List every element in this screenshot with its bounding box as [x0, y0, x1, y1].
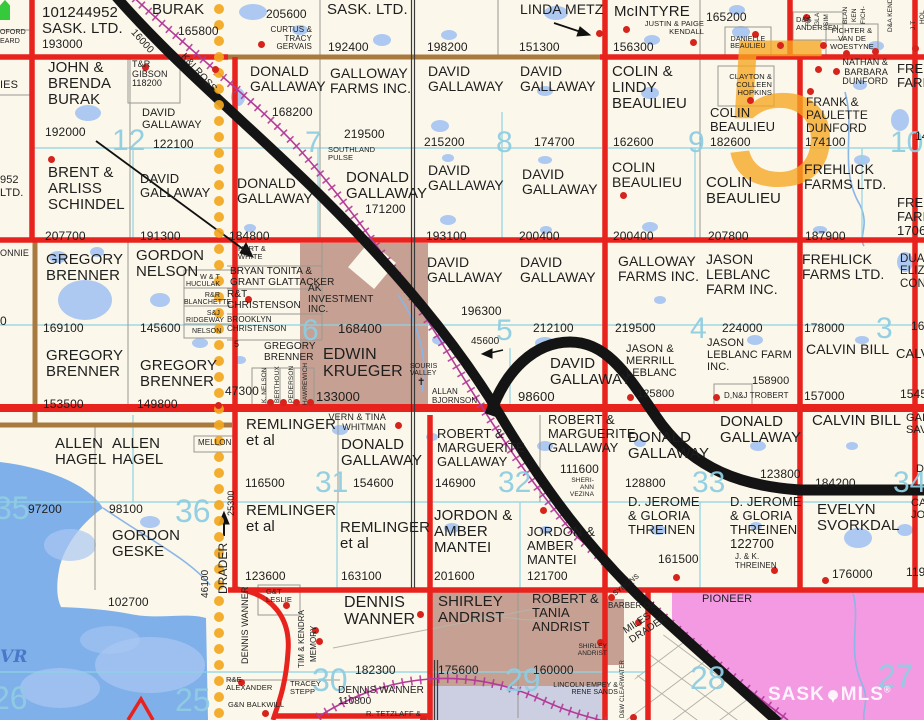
parcel-owner-label: DONALD GALLAWAY: [628, 430, 709, 462]
parcel-owner-label: LINCOLN EMPEY & RENE SANDS: [548, 682, 618, 697]
assessment-value: 201600: [434, 570, 475, 583]
parcel-owner-label: DONALD GALLAWAY: [250, 64, 326, 94]
parcel-owner-label: FICHTER & VAN DE WOESTYNE: [830, 27, 874, 51]
grid-road-dot: [214, 628, 224, 638]
parcel-owner-label: IES: [0, 80, 18, 92]
farm-site-dot: [815, 66, 822, 73]
farm-site-dot: [540, 507, 547, 514]
farm-site-dot: [212, 66, 219, 73]
parcel-owner-label: COLIN BEAULIEU: [710, 106, 775, 134]
assessment-value: 192400: [328, 41, 369, 54]
parcel-owner-label: ALLAN BJORNSON: [432, 388, 477, 405]
grid-road-dot: [214, 484, 224, 494]
parcel-owner-label: W & T HUCULAK: [186, 274, 220, 289]
parcel-owner-label: DAVID GALLAWAY: [140, 172, 210, 200]
parcel-owner-label: BRENT & ARLISS SCHINDEL: [48, 165, 125, 213]
parcel-owner-label: HART & WHITE: [238, 245, 266, 261]
parcel-owner-label: FREHLICK FARMS: [897, 62, 924, 90]
grid-road-dot: [214, 212, 224, 222]
assessment-value: 25300: [227, 490, 237, 516]
parcel-owner-label: GALLOWAY FARMS INC.: [330, 66, 411, 96]
section-number: 12: [112, 126, 145, 156]
farm-site-dot: [822, 577, 829, 584]
parcel-owner-label: D: [916, 464, 924, 476]
grid-road-dot: [214, 708, 224, 718]
assessment-value: 121700: [527, 570, 568, 583]
assessment-value: 182600: [710, 136, 751, 149]
parcel-owner-label: COLIN BEAULIEU: [612, 160, 682, 190]
assessment-value: 160000: [533, 664, 574, 677]
parcel-owner-label: NATHAN & BARBARA DUNFORD: [836, 58, 888, 87]
section-number: 8: [496, 128, 513, 158]
farm-site-dot: [777, 42, 784, 49]
grid-road-dot: [214, 452, 224, 462]
grid-road-dot: [214, 660, 224, 670]
assessment-value: 169100: [43, 322, 84, 335]
parcel-owner-label: SHIRLEY ANDRIST: [575, 644, 607, 658]
sask-mls-watermark: SASKMLS®: [768, 684, 892, 706]
farm-site-dot: [673, 574, 680, 581]
assessment-value: 161500: [658, 553, 699, 566]
road-name-label: DRADER: [217, 543, 230, 594]
watermark-text-left: SASK: [768, 684, 825, 705]
lake-name-fragment: VR: [0, 648, 28, 666]
grid-road-dot: [214, 116, 224, 126]
parcel-owner-label: R&T CHRISTENSON: [227, 290, 301, 311]
parcel-owner-label: ONNIE: [0, 249, 29, 259]
parcel-owner-label: DENNIS WANNER: [241, 587, 251, 664]
parcel-owner-label: JASON LEBLANC FARM INC.: [706, 252, 778, 297]
assessment-value: 45600: [471, 337, 499, 348]
parcel-owner-label: DAVID GALLAWAY: [520, 64, 596, 94]
assessment-value: 154600: [353, 477, 394, 490]
grid-road-dot: [214, 644, 224, 654]
assessment-value: 200400: [519, 230, 560, 243]
assessment-value: 101244952 SASK. LTD.: [42, 5, 123, 37]
assessment-value: 184200: [815, 477, 856, 490]
grid-road-dot: [214, 52, 224, 62]
farm-site-dot: [215, 402, 222, 409]
farm-site-dot: [820, 42, 827, 49]
assessment-value: 0: [0, 315, 7, 328]
farm-site-dot: [713, 394, 720, 401]
grid-road-dot: [214, 180, 224, 190]
assessment-value: 156300: [613, 41, 654, 54]
farm-site-dot: [747, 97, 754, 104]
parcel-owner-label: HAWREWICH: [303, 363, 310, 405]
section-number: 3: [876, 314, 893, 344]
parcel-owner-label: DONALD GALLAWAY: [346, 170, 427, 202]
parcel-owner-label: D&A KEND: [888, 0, 895, 32]
assessment-value: 151300: [519, 41, 560, 54]
assessment-value: 123800: [760, 468, 801, 481]
parcel-owner-label: COLIN & LINDY BEAULIEU: [612, 64, 687, 112]
parcel-owner-label: EARD: [0, 38, 20, 45]
parcel-owner-label: DAVID GALLAWAY: [520, 255, 596, 285]
assessment-value: 158900: [752, 376, 789, 388]
section-number: 36: [175, 495, 211, 527]
elevator-label: PIONEER: [702, 594, 752, 606]
assessment-value: 184800: [229, 230, 270, 243]
parcel-owner-label: CALVIN BILL: [806, 342, 889, 357]
farm-site-dot: [395, 422, 402, 429]
assessment-value: 133000: [316, 390, 360, 404]
parcel-owner-label: DENNIS WANNER: [344, 594, 415, 628]
assessment-value: 153500: [43, 398, 84, 411]
parcel-owner-label: VERN & TINA WHITMAN: [322, 413, 386, 432]
grid-road-dot: [214, 196, 224, 206]
parcel-owner-label: BLAN: [843, 7, 850, 24]
assessment-value: 175600: [438, 664, 479, 677]
farm-site-dot: [596, 30, 603, 37]
parcel-owner-label: DONALD GALLAWAY: [720, 414, 801, 446]
assessment-value: 149800: [137, 398, 178, 411]
parcel-owner-label: GREGORY BRENNER: [46, 252, 123, 284]
assessment-value: 171200: [365, 203, 406, 216]
parcel-owner-label: DENNIS WANNER 110800: [338, 686, 424, 707]
farm-site-dot: [807, 88, 814, 95]
assessment-value: 182300: [355, 664, 396, 677]
parcel-owner-label: GALLOWAY FARMS INC.: [618, 254, 699, 284]
section-number: 32: [498, 468, 531, 498]
grid-road-dot: [214, 676, 224, 686]
parcel-owner-label: D,N&J TROBERT: [724, 392, 789, 401]
parcel-owner-label: JORDON & AMBER MANTEI: [434, 508, 512, 556]
section-number: 28: [690, 662, 726, 694]
parcel-owner-label: REMLINGER et al: [340, 520, 430, 552]
grid-road-dot: [214, 532, 224, 542]
grid-road-dot: [214, 164, 224, 174]
section-number: 9: [688, 128, 705, 158]
parcel-owner-label: BURAK: [152, 2, 204, 18]
assessment-value: 154500: [900, 388, 924, 401]
parcel-owner-label: LINDA METZ: [520, 2, 603, 17]
parcel-owner-label: SIM: [824, 14, 831, 26]
grid-road-dot: [214, 516, 224, 526]
parcel-owner-label: HOL: [920, 10, 924, 24]
parcel-owner-label: G&T LESLIE: [266, 588, 292, 604]
parcel-owner-label: NELSON: [192, 328, 221, 335]
assessment-value: 207700: [45, 230, 86, 243]
parcel-owner-label: McINTYRE: [614, 4, 690, 20]
parcel-owner-label: DAVID GALLAWAY: [142, 108, 202, 132]
parcel-owner-label: REMLINGER et al: [246, 503, 336, 535]
parcel-owner-label: CLAYTON & COLLEEN HOPKINS: [726, 73, 772, 97]
section-number: 31: [315, 468, 348, 498]
parcel-owner-label: JASON & MERRILL LEBLANC: [626, 344, 677, 379]
section-number: 26: [0, 682, 28, 714]
assessment-value: 219500: [344, 128, 385, 141]
farm-site-dot: [912, 45, 919, 52]
assessment-value: 98600: [518, 390, 555, 404]
parcel-owner-label: CURTUS & TRACY GERVAIS: [248, 26, 312, 52]
parcel-owner-label: AK INVESTMENT INC.: [308, 284, 373, 316]
grid-road-dot: [214, 260, 224, 270]
parcel-owner-label: DUANE ELIZABETH CONLIN: [900, 253, 924, 290]
assessment-value: 176000: [832, 568, 873, 581]
assessment-value: 193000: [42, 38, 83, 51]
assessment-value: 123600: [245, 570, 286, 583]
farm-site-dot: [48, 156, 55, 163]
assessment-value: 215200: [424, 136, 465, 149]
parcel-owner-label: CALVIN BILL: [812, 413, 901, 429]
section-number: 7: [305, 128, 322, 158]
assessment-value: 165200: [706, 11, 747, 24]
assessment-value: 174100: [805, 136, 846, 149]
farm-site-dot: [843, 50, 850, 57]
parcel-owner-label: TIM & KENDRA: [298, 610, 307, 668]
assessment-value: 205600: [266, 8, 307, 21]
assessment-value: 97200: [28, 503, 62, 516]
assessment-value: 165800: [178, 25, 219, 38]
map-canvas[interactable]: 5 12789106543363531323334302928272625101…: [0, 0, 924, 720]
parcel-owner-label: S&J RIDGEWAY: [186, 310, 220, 325]
assessment-value: 224000: [722, 322, 763, 335]
parcel-owner-label: SHIRLEY ANDRIST: [438, 594, 505, 626]
assessment-value: 47300: [225, 385, 259, 398]
parcel-owner-label: G&N BALKWILL: [228, 701, 284, 709]
parcel-owner-label: ALLEN HAGEL: [112, 436, 163, 468]
grid-road-dot: [214, 340, 224, 350]
grid-road-dot: [214, 420, 224, 430]
grid-road-dot: [214, 100, 224, 110]
parcel-owner-label: D&W CLEARWATER: [620, 660, 626, 718]
assessment-value: 128800: [625, 477, 666, 490]
assessment-value: 212100: [533, 322, 574, 335]
parcel-owner-label: MELLON: [198, 439, 232, 448]
assessment-value: 157000: [804, 390, 845, 403]
parcel-owner-label: GLA: [815, 13, 822, 26]
grid-road-dot: [214, 612, 224, 622]
parcel-owner-label: JORDON & AMBER MANTEI: [527, 525, 595, 567]
parcel-owner-label: GREGORY BRENNER: [140, 358, 217, 390]
assessment-value: 162600: [613, 136, 654, 149]
parcel-owner-label: DONALD GALLAWAY: [341, 437, 422, 469]
assessment-value: 163100: [341, 570, 382, 583]
grid-road-dot: [214, 148, 224, 158]
parcel-owner-label: GREGORY BRENNER: [264, 342, 316, 363]
parcel-owner-label: J.T: [911, 21, 918, 30]
assessment-value: 952: [0, 175, 19, 187]
assessment-value: 146900: [435, 477, 476, 490]
assessment-value: 178000: [804, 322, 845, 335]
parcel-owner-label: DANIELLE BEAULIEU: [730, 36, 766, 51]
parcel-owner-label: T&R GIBSON 118200: [132, 60, 168, 89]
parcel-owner-label: DAVID GALLAWAY: [428, 64, 504, 94]
section-number: 25: [175, 684, 211, 716]
parcel-owner-label: DAVID GALLAWAY: [522, 167, 598, 197]
farm-site-dot: [623, 26, 630, 33]
assessment-value: 116500: [245, 477, 285, 490]
parcel-owner-label: K. NELSON: [262, 367, 269, 403]
parcel-owner-label: SHERI-ANN VEZINA: [560, 478, 594, 499]
assessment-value: 111600: [560, 463, 599, 476]
parcel-owner-label: ROBERT & MARGUERITE GALLAWAY: [437, 427, 525, 469]
assessment-value: 193100: [426, 230, 467, 243]
parcel-owner-label: RIC: [806, 15, 813, 27]
parcel-owner-label: KEN: [852, 8, 859, 22]
parcel-owner-label: BERTHOUX: [275, 366, 282, 403]
parcel-owner-label: JOHN & BRENDA BURAK: [48, 60, 111, 108]
grid-road-dot: [214, 468, 224, 478]
farm-site-dot: [262, 710, 269, 717]
parcel-owner-label: DAVID GALLAWAY: [428, 163, 504, 193]
watermark-text-right: MLS: [841, 684, 884, 705]
parcel-owner-label: JASON LEBLANC FARM INC.: [707, 338, 792, 373]
assessment-value: 207800: [708, 230, 749, 243]
parcel-owner-label: D. JEROME & GLORIA THREINEN 122700: [730, 495, 802, 551]
locality-label: SOURIS VALLEY: [410, 363, 437, 378]
farm-site-dot: [630, 714, 637, 720]
assessment-value: 168200: [272, 106, 313, 119]
assessment-value: 174700: [534, 136, 575, 149]
parcel-owner-label: DAVID GALLAWAY: [550, 356, 631, 388]
parcel-owner-label: EDWIN KRUEGER: [323, 346, 403, 380]
parcel-owner-label: TRACEY STEPP: [290, 680, 321, 696]
assessment-value: 5: [234, 340, 239, 350]
grid-road-dot: [214, 500, 224, 510]
parcel-owner-label: ROBERT & TANIA ANDRIST: [532, 592, 599, 634]
parcel-owner-label: GORDON GESKE: [112, 528, 180, 560]
parcel-owner-label: FREHLICK FARMS 170600: [897, 196, 924, 238]
watermark-registered-mark: ®: [884, 685, 892, 695]
assessment-value: 98100: [109, 503, 143, 516]
assessment-value: 14: [915, 130, 924, 143]
grid-road-dot: [214, 4, 224, 14]
parcel-owner-label: DONALD GALLAWAY: [237, 176, 313, 206]
parcel-owner-label: GAR SAV: [906, 413, 924, 437]
assessment-value: 192000: [45, 126, 86, 139]
parcel-owner-label: CA JO: [911, 498, 924, 522]
cemetery-cross-icon: ✝: [417, 378, 425, 389]
assessment-value: 145600: [140, 322, 181, 335]
parcel-owner-label: R&R BLANCHETTE: [184, 292, 220, 307]
section-number: 4: [690, 314, 707, 344]
parcel-owner-label: MEMORY: [310, 626, 319, 662]
assessment-value: 196300: [461, 305, 502, 318]
parcel-owner-label: D. JEROME & GLORIA THREINEN: [628, 495, 700, 537]
grid-road-dot: [214, 692, 224, 702]
farm-site-dot: [690, 39, 697, 46]
assessment-value: 122100: [153, 138, 194, 151]
assessment-value: 187900: [805, 230, 846, 243]
assessment-value: 16: [911, 320, 924, 333]
parcel-owner-label: OFORD: [0, 29, 26, 36]
assessment-value: 200400: [613, 230, 654, 243]
farm-site-dot: [627, 394, 634, 401]
grid-road-dot: [214, 228, 224, 238]
assessment-value: 46100: [201, 570, 212, 598]
parcel-owner-label: LTD.: [0, 188, 23, 200]
assessment-value: 119: [906, 566, 924, 579]
assessment-value: 102700: [108, 596, 149, 609]
parcel-owner-label: J. & K. THREINEN: [735, 553, 777, 570]
parcel-owner-label: SASK. LTD.: [327, 2, 408, 18]
assessment-value: 219500: [615, 322, 656, 335]
parcel-owner-label: R. TETZLAFF &: [366, 710, 421, 718]
parcel-owner-label: FREHLICK FARMS LTD.: [802, 252, 884, 282]
grid-road-dot: [214, 132, 224, 142]
grid-road-dot: [214, 244, 224, 254]
parcel-owner-label: BROOKLYN CHRISTENSON: [227, 316, 286, 333]
assessment-value: 168400: [338, 322, 382, 336]
assessment-value: 198200: [427, 41, 468, 54]
farm-site-dot: [417, 611, 424, 618]
assessment-value: 125800: [637, 389, 674, 401]
map-pin-icon: [828, 690, 838, 700]
section-number: 35: [0, 492, 30, 524]
farm-site-dot: [420, 716, 427, 720]
parcel-owner-label: ROBERT & MARGUERITE GALLAWAY: [548, 413, 636, 455]
parcel-owner-label: R&E ALEXANDER: [226, 676, 272, 692]
parcel-owner-label: ALLEN HAGEL: [55, 436, 106, 468]
parcel-owner-label: FRANK & PAULETTE DUNFORD: [806, 96, 868, 134]
parcel-owner-label: GREGORY BRENNER: [46, 348, 123, 380]
parcel-owner-label: PEDERSON: [289, 366, 296, 403]
parcel-owner-label: JUSTIN & PAIGE KENDALL: [642, 20, 704, 36]
parcel-owner-label: CALVIN: [896, 347, 924, 361]
parcel-owner-label: DAVID GALLAWAY: [427, 255, 503, 285]
elevator-label: SOUTHLAND PULSE: [328, 146, 375, 162]
parcel-owner-label: FICH-: [861, 6, 868, 24]
grid-road-dot: [214, 596, 224, 606]
parcel-owner-label: FREHLICK FARMS LTD.: [804, 162, 886, 192]
parcel-owner-label: EVELYN SVORKDAL: [817, 502, 900, 534]
farm-site-dot: [620, 192, 627, 199]
assessment-value: 191300: [140, 230, 181, 243]
parcel-owner-label: COLIN BEAULIEU: [706, 175, 781, 207]
